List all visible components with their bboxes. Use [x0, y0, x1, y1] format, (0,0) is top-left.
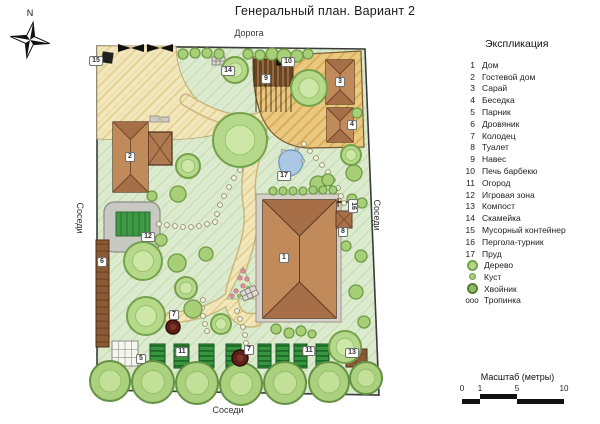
scale-bar — [455, 394, 580, 406]
legend-item-label: Навес — [482, 154, 506, 164]
legend-item: 1Дом — [462, 59, 598, 71]
legend-item-label: Огород — [482, 178, 510, 188]
legend-item-number: 13 — [462, 201, 475, 211]
legend-item-number: 2 — [462, 72, 475, 82]
shed — [326, 60, 354, 104]
scale-tick: 10 — [560, 384, 569, 393]
legend-item-number: 15 — [462, 225, 475, 235]
legend-item-label: Гостевой дом — [482, 72, 535, 82]
scale-title: Масштаб (метры) — [455, 372, 580, 382]
legend-items: 1Дом2Гостевой дом3Сарай4Беседка5Парник6Д… — [462, 59, 598, 260]
legend-heading: Экспликация — [485, 38, 598, 50]
legend-item: 2Гостевой дом — [462, 71, 598, 83]
legend-symbol-row: Хвойник — [462, 283, 598, 295]
legend-item: 17Пруд — [462, 248, 598, 260]
path-icon: ооо — [462, 296, 482, 305]
legend-item: 15Мусорный контейнер — [462, 224, 598, 236]
woodshed — [96, 240, 109, 347]
legend-item-label: Печь барбекю — [482, 166, 538, 176]
scale-tick: 5 — [515, 384, 519, 393]
scale-ticks: 01510 — [455, 384, 580, 394]
legend-item: 3Сарай — [462, 83, 598, 95]
legend-item-number: 12 — [462, 190, 475, 200]
legend-item-label: Пергола-турник — [482, 237, 544, 247]
gazebo — [327, 108, 353, 142]
legend: Экспликация 1Дом2Гостевой дом3Сарай4Бесе… — [462, 38, 598, 306]
legend-item-number: 3 — [462, 83, 475, 93]
legend-item: 8Туалет — [462, 142, 598, 154]
legend-item-label: Дом — [482, 60, 498, 70]
legend-item: 9Навес — [462, 153, 598, 165]
legend-symbol-label: Дерево — [484, 260, 513, 270]
legend-item-label: Пруд — [482, 249, 502, 259]
scale-segment — [517, 399, 564, 404]
legend-item: 4Беседка — [462, 94, 598, 106]
legend-item-label: Колодец — [482, 131, 516, 141]
conifer-icon — [467, 283, 478, 294]
legend-item-number: 16 — [462, 237, 475, 247]
legend-symbol-row: оооТропинка — [462, 294, 598, 306]
legend-item-number: 8 — [462, 142, 475, 152]
legend-item-number: 4 — [462, 95, 475, 105]
legend-item: 5Парник — [462, 106, 598, 118]
legend-item-number: 9 — [462, 154, 475, 164]
legend-item-number: 7 — [462, 131, 475, 141]
main-house — [256, 194, 341, 322]
scale-segment — [480, 394, 517, 399]
legend-item: 16Пергола-турник — [462, 236, 598, 248]
legend-item-number: 5 — [462, 107, 475, 117]
legend-item-label: Дровяник — [482, 119, 519, 129]
legend-item: 13Компост — [462, 201, 598, 213]
legend-item: 11Огород — [462, 177, 598, 189]
legend-item-number: 11 — [462, 178, 475, 188]
legend-item-label: Мусорный контейнер — [482, 225, 566, 235]
legend-symbol-label: Тропинка — [484, 295, 521, 305]
legend-item: 12Игровая зона — [462, 189, 598, 201]
legend-symbol-label: Хвойник — [484, 284, 517, 294]
legend-item-label: Компост — [482, 201, 515, 211]
legend-item: 6Дровяник — [462, 118, 598, 130]
legend-item-label: Туалет — [482, 142, 509, 152]
toilet — [336, 211, 352, 228]
legend-symbol-label: Куст — [484, 272, 501, 282]
legend-item-label: Скамейка — [482, 213, 521, 223]
legend-item-number: 14 — [462, 213, 475, 223]
legend-item-number: 1 — [462, 60, 475, 70]
legend-item: 7Колодец — [462, 130, 598, 142]
legend-item: 14Скамейка — [462, 212, 598, 224]
legend-symbol-row: Куст — [462, 271, 598, 283]
legend-item-number: 10 — [462, 166, 475, 176]
bush-icon — [469, 273, 476, 280]
tree-icon — [467, 260, 478, 271]
scale-tick: 0 — [460, 384, 464, 393]
scale-segment — [462, 399, 480, 404]
legend-item-label: Сарай — [482, 83, 507, 93]
legend-symbols: ДеревоКустХвойникоооТропинка — [462, 260, 598, 306]
legend-item-number: 17 — [462, 249, 475, 259]
scale-tick: 1 — [478, 384, 482, 393]
legend-item-number: 6 — [462, 119, 475, 129]
legend-item-label: Беседка — [482, 95, 515, 105]
legend-symbol-row: Дерево — [462, 260, 598, 272]
legend-item-label: Парник — [482, 107, 511, 117]
legend-item-label: Игровая зона — [482, 190, 535, 200]
legend-item: 10Печь барбекю — [462, 165, 598, 177]
trash-container — [101, 51, 113, 63]
scale-block: Масштаб (метры) 01510 — [455, 372, 580, 406]
